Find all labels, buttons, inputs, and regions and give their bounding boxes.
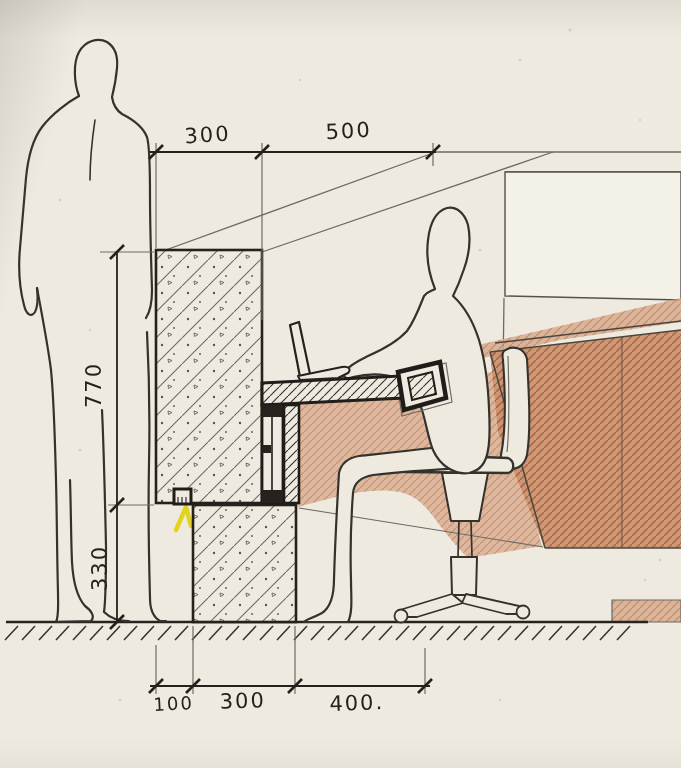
dimension-label-bottom-100: 100 <box>153 692 194 715</box>
standing-figure-head <box>75 40 117 97</box>
laptop <box>290 322 350 380</box>
chair-caster-right <box>517 606 530 619</box>
highlight-caret <box>176 507 191 530</box>
dimension-label-bottom-300: 300 <box>219 688 266 714</box>
wall-panel <box>505 172 681 300</box>
laptop-screen <box>290 322 310 377</box>
chair-gas-lift <box>451 557 477 595</box>
ground-line <box>5 622 648 640</box>
chair-mechanism <box>442 473 488 521</box>
desk-support-panel <box>284 405 299 503</box>
ground-hatch <box>5 626 630 640</box>
chair-caster-left <box>395 610 408 623</box>
dimension-label-left-330: 330 <box>88 545 112 591</box>
standing-figure <box>19 40 166 622</box>
partition-wall-upper-section <box>156 250 262 503</box>
dimension-label-top-500: 500 <box>325 118 372 144</box>
dimension-label-top-300: 300 <box>184 121 232 148</box>
chair-base-leg-right <box>462 594 525 614</box>
sketch-page: 300 500 770 330 100 300 400. <box>0 0 681 768</box>
wall-fixing-bracket <box>174 489 191 504</box>
dimension-label-bottom-400: 400. <box>329 690 385 716</box>
desk-support-frame <box>262 405 283 503</box>
dimension-label-left-770: 770 <box>82 362 106 408</box>
partition-wall-lower-section <box>193 505 296 622</box>
chair-backrest <box>501 348 530 469</box>
sketch-canvas: 300 500 770 330 100 300 400. <box>0 0 681 768</box>
toe-base <box>612 600 681 622</box>
chair-base-leg-left <box>399 594 463 617</box>
